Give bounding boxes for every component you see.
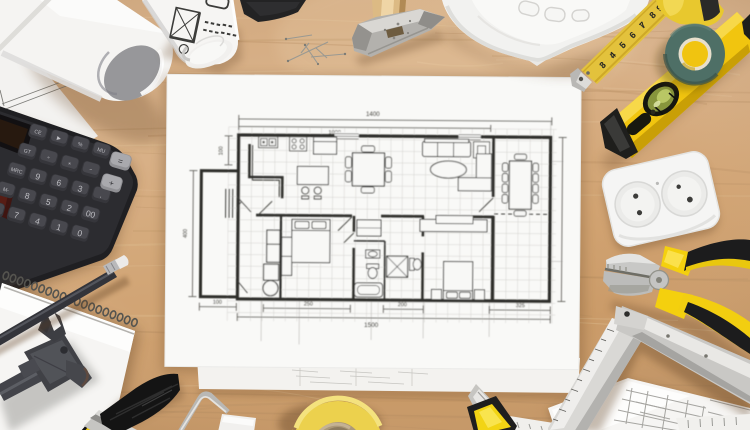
svg-text:325: 325 <box>516 303 525 309</box>
svg-text:100: 100 <box>213 300 222 306</box>
svg-text:100: 100 <box>219 146 225 155</box>
svg-text:400: 400 <box>183 229 189 238</box>
svg-text:1400: 1400 <box>366 111 380 118</box>
svg-text:1500: 1500 <box>364 322 379 329</box>
svg-text:250: 250 <box>304 301 313 307</box>
svg-text:200: 200 <box>398 302 407 308</box>
